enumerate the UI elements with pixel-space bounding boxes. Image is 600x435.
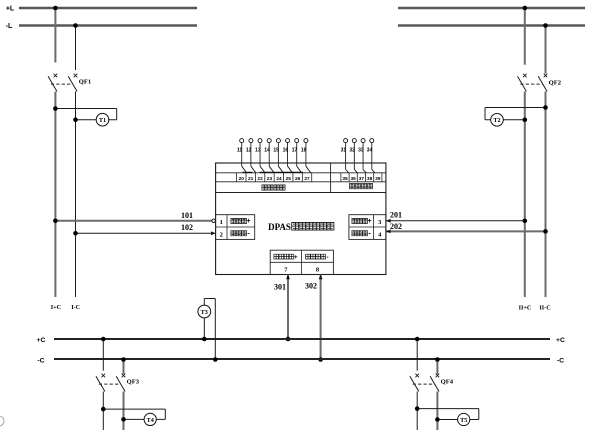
svg-text:DPAS: DPAS [268, 222, 291, 232]
svg-text:22: 22 [257, 176, 263, 182]
svg-text:302: 302 [305, 282, 317, 291]
svg-text:7: 7 [284, 266, 288, 273]
svg-text:18: 18 [301, 148, 307, 154]
svg-text:14: 14 [264, 148, 270, 154]
svg-text:24: 24 [276, 176, 282, 182]
svg-text:21: 21 [248, 176, 254, 182]
svg-text:+: + [368, 218, 372, 225]
svg-text:T2: T2 [493, 117, 500, 124]
svg-text:T5: T5 [460, 417, 467, 424]
svg-text:QF1: QF1 [79, 79, 91, 86]
svg-text:2: 2 [220, 231, 223, 238]
svg-text:32: 32 [349, 148, 355, 154]
svg-text:15: 15 [273, 148, 279, 154]
svg-text:13: 13 [255, 148, 261, 154]
svg-text:11: 11 [237, 148, 243, 154]
svg-text:II-C: II-C [539, 305, 550, 312]
svg-text:20: 20 [239, 176, 245, 182]
svg-text:+L: +L [6, 6, 15, 13]
svg-text:25: 25 [286, 176, 292, 182]
svg-text:I-C: I-C [71, 304, 80, 311]
svg-text:26: 26 [295, 176, 301, 182]
svg-text:-L: -L [6, 23, 13, 30]
svg-text:QF2: QF2 [549, 80, 562, 87]
svg-text:-C: -C [37, 358, 44, 365]
svg-text:-: - [247, 231, 250, 238]
svg-text:4: 4 [378, 231, 382, 238]
svg-text:+: + [294, 254, 298, 261]
svg-text:+C: +C [556, 337, 565, 344]
svg-text:101: 101 [181, 211, 193, 220]
svg-text:33: 33 [358, 148, 364, 154]
svg-text:QF3: QF3 [127, 379, 140, 386]
svg-text:+C: +C [37, 337, 46, 344]
svg-text:8: 8 [316, 266, 320, 273]
svg-text:12: 12 [246, 148, 252, 154]
svg-text:301: 301 [274, 283, 286, 292]
svg-text:3: 3 [378, 219, 382, 226]
svg-text:39: 39 [375, 176, 381, 182]
svg-text:31: 31 [341, 148, 347, 154]
svg-text:23: 23 [267, 176, 273, 182]
svg-text:T3: T3 [201, 309, 208, 316]
svg-text:+: + [247, 218, 251, 225]
svg-text:T1: T1 [99, 117, 106, 124]
svg-text:202: 202 [390, 222, 402, 231]
svg-text:102: 102 [181, 223, 193, 232]
svg-text:16: 16 [283, 148, 289, 154]
svg-text:-: - [326, 254, 328, 261]
svg-text:37: 37 [359, 176, 365, 182]
svg-text:17: 17 [292, 148, 298, 154]
svg-text:38: 38 [367, 176, 373, 182]
svg-text:-: - [368, 231, 371, 238]
svg-text:27: 27 [304, 176, 310, 182]
svg-text:36: 36 [351, 176, 357, 182]
svg-text:T4: T4 [147, 417, 154, 424]
svg-text:34: 34 [367, 148, 373, 154]
svg-text:-C: -C [557, 358, 564, 365]
svg-text:1: 1 [220, 219, 223, 226]
svg-text:QF4: QF4 [441, 379, 454, 386]
svg-text:II+C: II+C [519, 305, 532, 312]
svg-text:I+C: I+C [51, 304, 61, 311]
svg-text:35: 35 [342, 176, 348, 182]
svg-text:201: 201 [390, 211, 402, 220]
